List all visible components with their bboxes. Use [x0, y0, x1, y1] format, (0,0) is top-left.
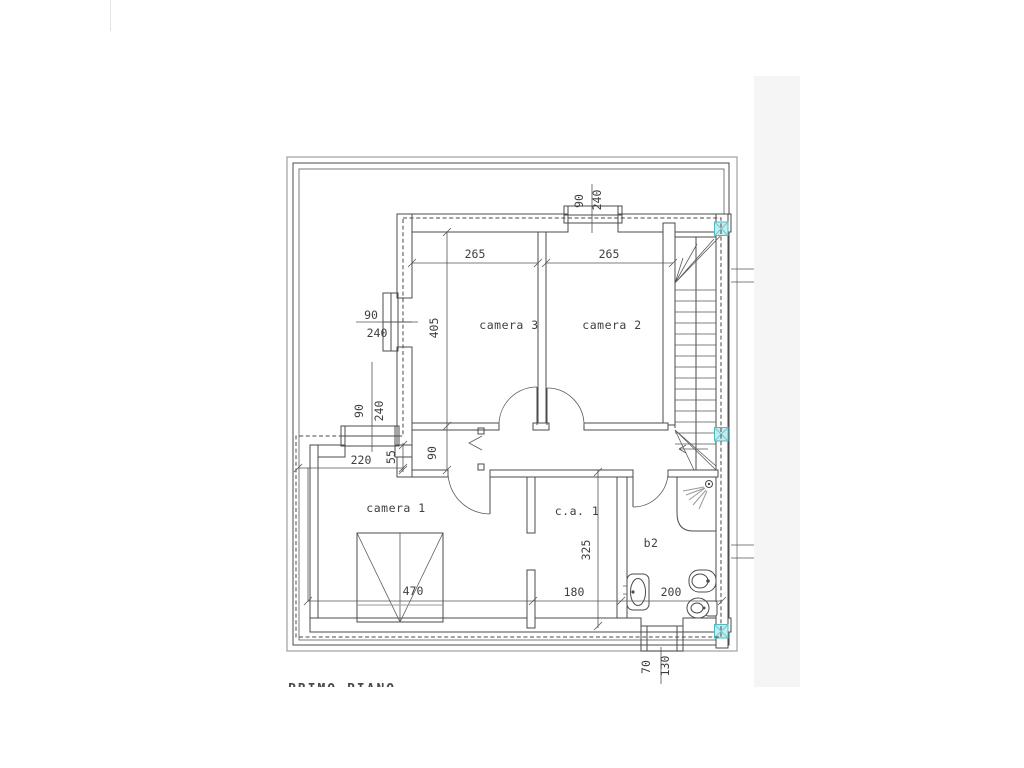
dim-window-camera1-h: 240	[372, 401, 386, 422]
room-label-camera1: camera 1	[366, 501, 425, 515]
dim-camera1-width: 470	[403, 584, 424, 598]
dim-bath-width: 200	[661, 585, 682, 599]
shower-icon	[677, 477, 716, 531]
dim-window-camera1-w: 90	[352, 404, 366, 418]
dim-wall-offset: 55	[384, 450, 398, 464]
room-label-bath: b2	[644, 536, 659, 550]
dim-window-bath-h: 130	[658, 656, 672, 677]
room-label-camera2: camera 2	[582, 318, 641, 332]
dim-window-left-h: 240	[367, 326, 388, 340]
dimension-lines	[294, 184, 726, 684]
window-camera1	[341, 426, 399, 446]
door-bath	[633, 472, 668, 507]
dim-terrace-left: 220	[351, 453, 372, 467]
door-camera3	[499, 387, 537, 425]
door-camera1	[448, 472, 490, 514]
window-bath	[641, 626, 683, 651]
dim-closet-width: 180	[564, 585, 585, 599]
sink-icon	[623, 574, 649, 610]
wardrobe-icon	[357, 533, 443, 622]
dim-window-top-h: 240	[590, 190, 604, 211]
dim-camera3-width: 265	[465, 247, 486, 261]
dim-window-left-w: 90	[364, 308, 378, 322]
dim-closet-depth: 325	[579, 540, 593, 561]
walls	[310, 214, 731, 648]
dim-camera2-width: 265	[599, 247, 620, 261]
bidet-icon	[689, 570, 716, 592]
dim-hallway-width: 90	[425, 446, 439, 460]
door-camera2	[547, 388, 584, 425]
dim-window-top-w: 90	[572, 194, 586, 208]
balcony-stub-lines	[731, 269, 754, 558]
scan-artifact-line	[110, 0, 111, 31]
door-frame-marks	[469, 428, 484, 470]
room-label-camera3: camera 3	[479, 318, 538, 332]
dim-window-bath-w: 70	[639, 660, 653, 674]
dim-camera3-depth: 405	[427, 318, 441, 339]
doors	[448, 387, 668, 514]
floor-plan-svg: camera 3 camera 2 camera 1 c.a. 1 b2 265…	[270, 145, 770, 705]
screenshot-root: camera 3 camera 2 camera 1 c.a. 1 b2 265…	[0, 0, 1024, 768]
room-label-closet: c.a. 1	[555, 504, 600, 518]
floor-title: PRIMO PIANO	[288, 682, 418, 687]
